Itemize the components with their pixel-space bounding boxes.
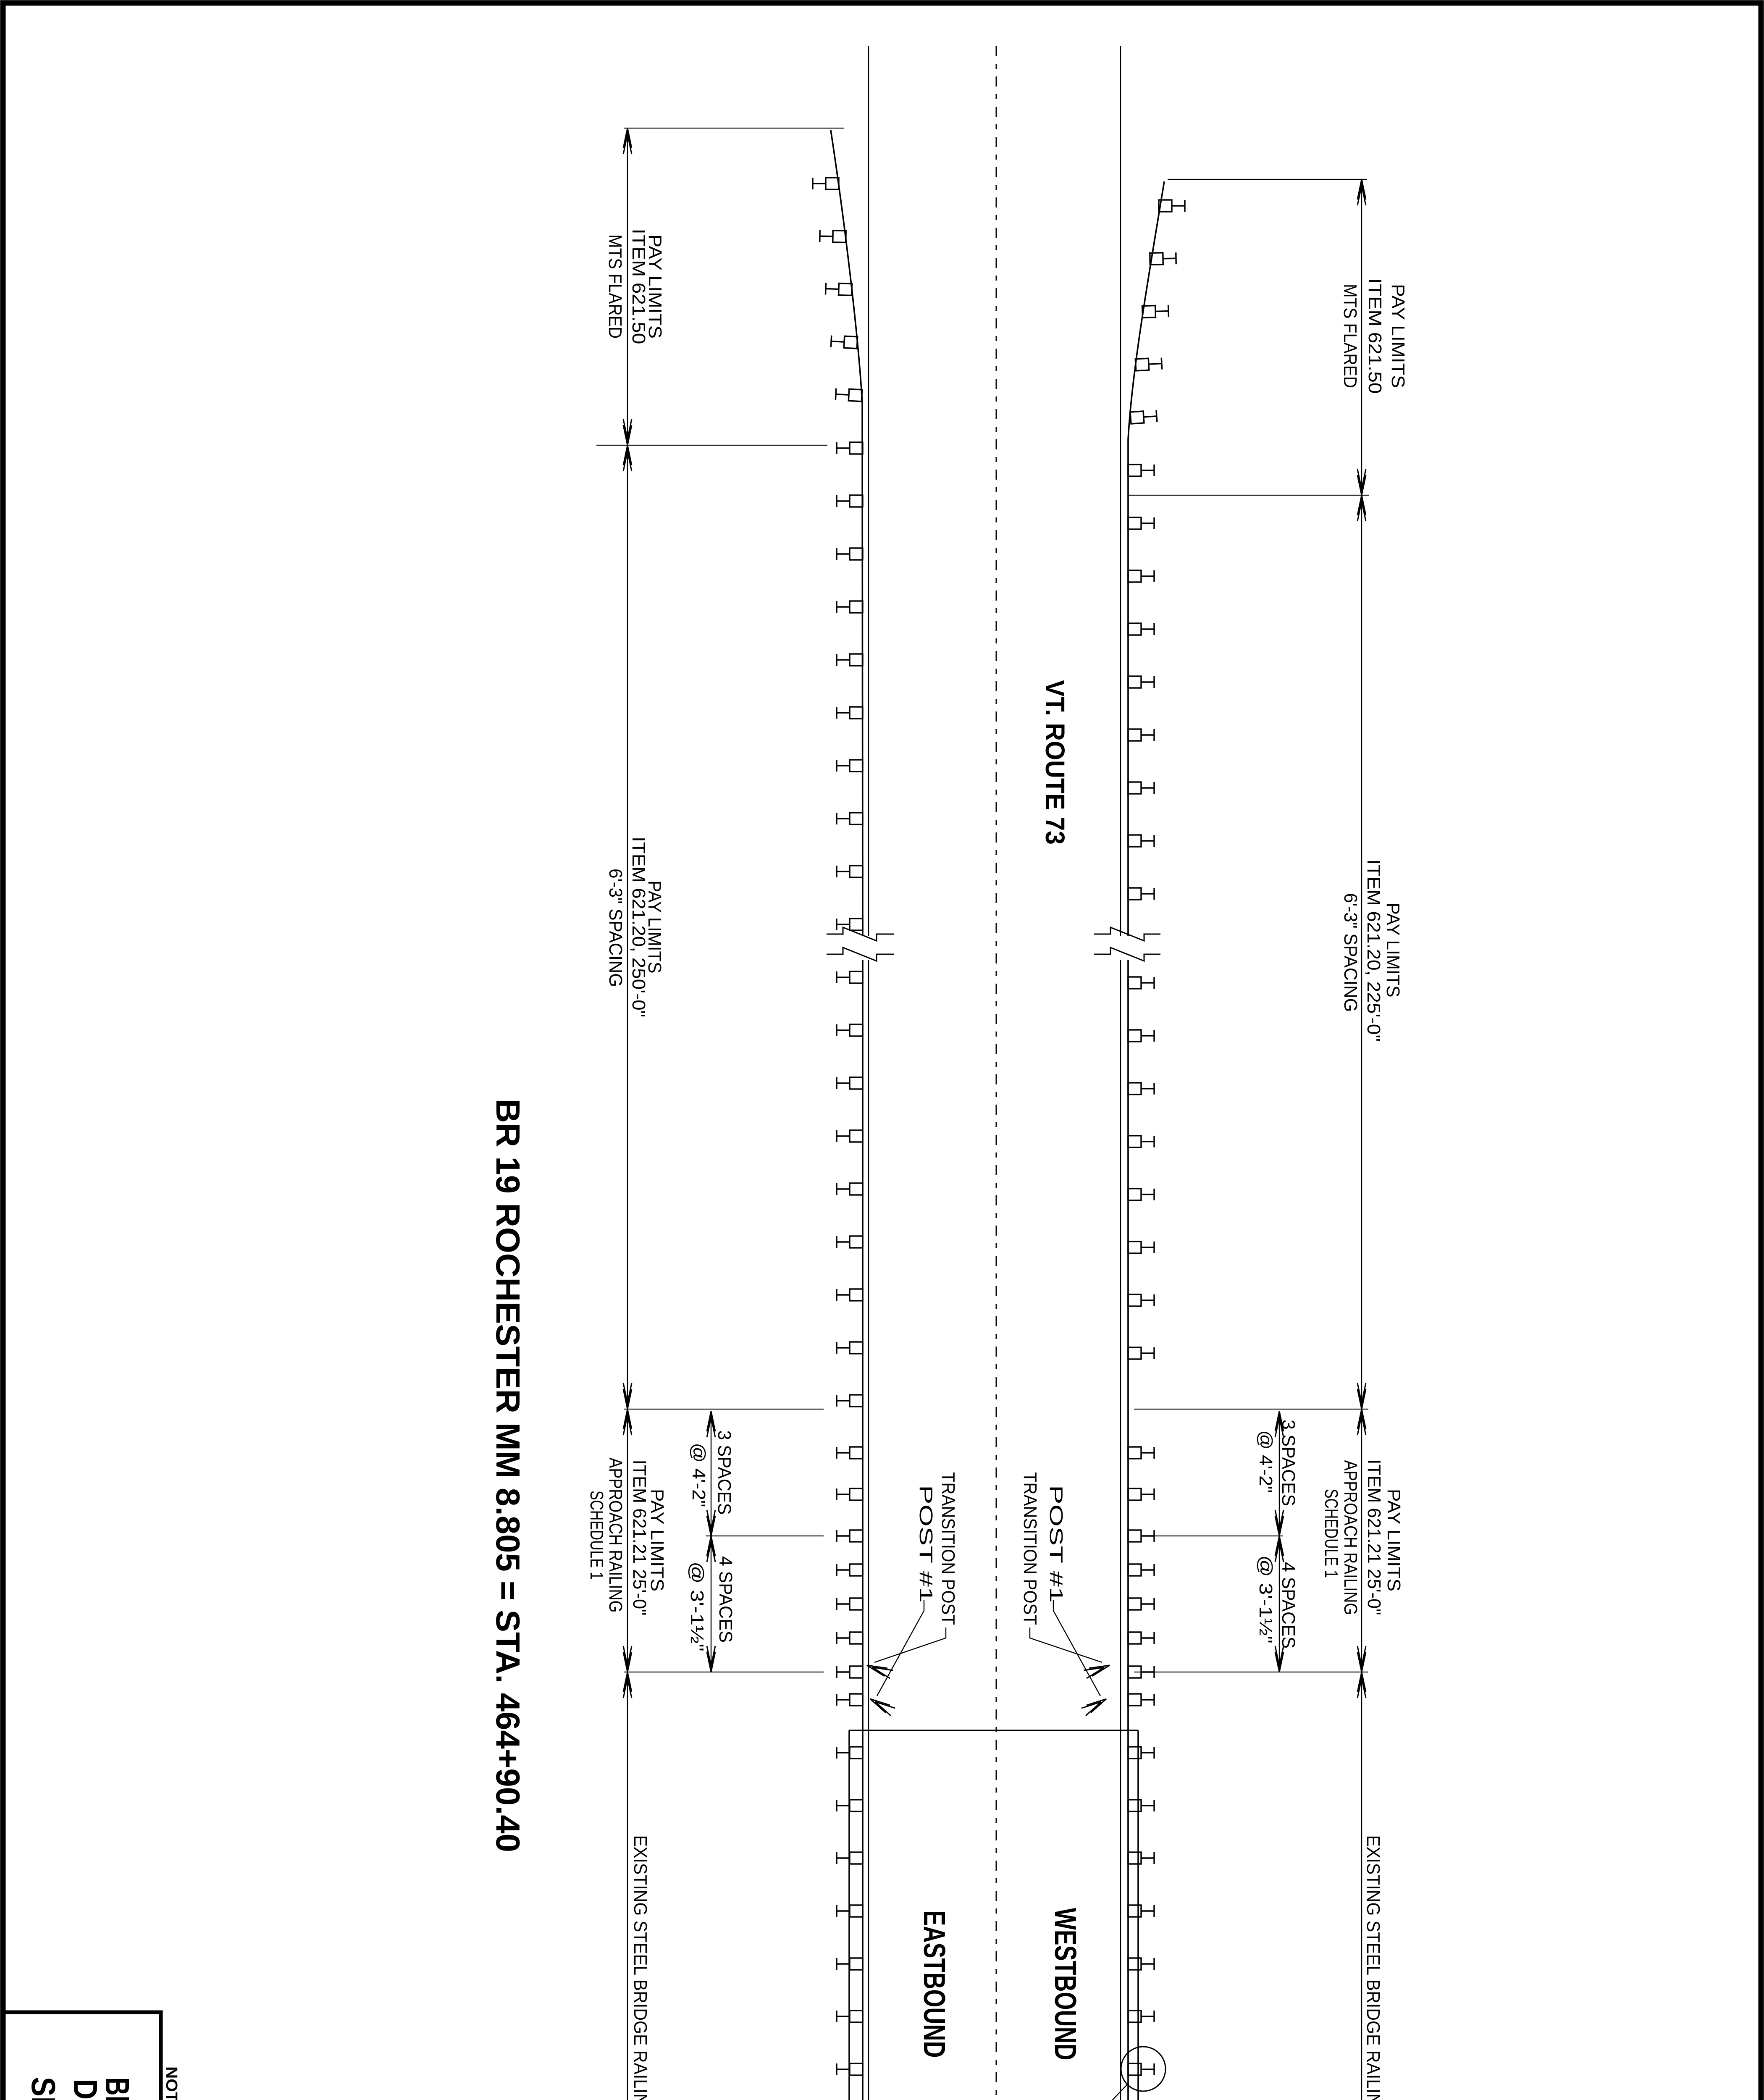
svg-text:SHEET #6: SHEET #6 (25, 2077, 62, 2100)
svg-text:TRANSITION POST: TRANSITION POST (1020, 1472, 1040, 1625)
svg-text:SCHEDULE 1: SCHEDULE 1 (1321, 1489, 1341, 1578)
svg-text:MTS FLARED: MTS FLARED (605, 234, 625, 339)
svg-text:EASTBOUND: EASTBOUND (917, 1911, 951, 2058)
svg-text:@ 3'-1½": @ 3'-1½" (1255, 1555, 1276, 1643)
svg-text:3 SPACES: 3 SPACES (1278, 1420, 1299, 1506)
svg-text:TRANSITION POST: TRANSITION POST (938, 1472, 958, 1625)
svg-text:3 SPACES: 3 SPACES (714, 1431, 735, 1515)
svg-text:ITEM 621.21 25'-0": ITEM 621.21 25'-0" (629, 1460, 650, 1616)
svg-text:@ 4'-2": @ 4'-2" (1255, 1431, 1276, 1493)
svg-text:ITEM 621.20, 225'-0": ITEM 621.20, 225'-0" (1363, 859, 1384, 1042)
svg-text:6'-3" SPACING: 6'-3" SPACING (1340, 893, 1361, 1012)
svg-text:DETAIL: DETAIL (67, 2079, 104, 2100)
svg-text:@ 3'-1½": @ 3'-1½" (687, 1562, 707, 1651)
svg-text:POST #1: POST #1 (916, 1485, 936, 1603)
svg-text:APPROACH RAILING: APPROACH RAILING (605, 1458, 626, 1613)
svg-text:EXISTING STEEL BRIDGE RAILING: EXISTING STEEL BRIDGE RAILING TO REMAIN (1363, 1835, 1383, 2100)
svg-text:APPROACH RAILING: APPROACH RAILING (1340, 1460, 1361, 1615)
svg-text:ITEM 621.50: ITEM 621.50 (628, 229, 649, 344)
svg-text:ITEM 621.50: ITEM 621.50 (1365, 278, 1385, 394)
svg-text:POST #1: POST #1 (1046, 1485, 1066, 1603)
svg-text:BR 19 ROCHESTER MM 8.805 =: BR 19 ROCHESTER MM 8.805 = STA. 464+90.4… (489, 1099, 527, 1852)
svg-text:NOT TO SCALE: NOT TO SCALE (163, 2066, 180, 2100)
svg-text:PAY LIMITS: PAY LIMITS (1388, 284, 1408, 388)
svg-text:MTS FLARED: MTS FLARED (1340, 284, 1360, 388)
svg-text:ITEM 621.20, 250'-0": ITEM 621.20, 250'-0" (628, 837, 649, 1017)
svg-text:PAY LIMITS: PAY LIMITS (1383, 903, 1403, 997)
svg-text:4 SPACES: 4 SPACES (1278, 1562, 1299, 1648)
svg-text:6'-3" SPACING: 6'-3" SPACING (605, 869, 626, 987)
svg-text:ITEM 621.21 25'-0": ITEM 621.21 25'-0" (1364, 1459, 1384, 1615)
svg-text:WESTBOUND: WESTBOUND (1048, 1908, 1082, 2061)
svg-text:4 SPACES: 4 SPACES (715, 1556, 736, 1643)
svg-text:VT. ROUTE 73: VT. ROUTE 73 (1040, 680, 1070, 845)
svg-text:@ 4'-2": @ 4'-2" (688, 1443, 709, 1507)
svg-text:PAY LIMITS: PAY LIMITS (1383, 1489, 1404, 1591)
svg-text:SCHEDULE 1: SCHEDULE 1 (586, 1491, 607, 1580)
svg-text:EXISTING STEEL BRIDGE RAILING: EXISTING STEEL BRIDGE RAILING TO REMAIN (630, 1835, 651, 2100)
